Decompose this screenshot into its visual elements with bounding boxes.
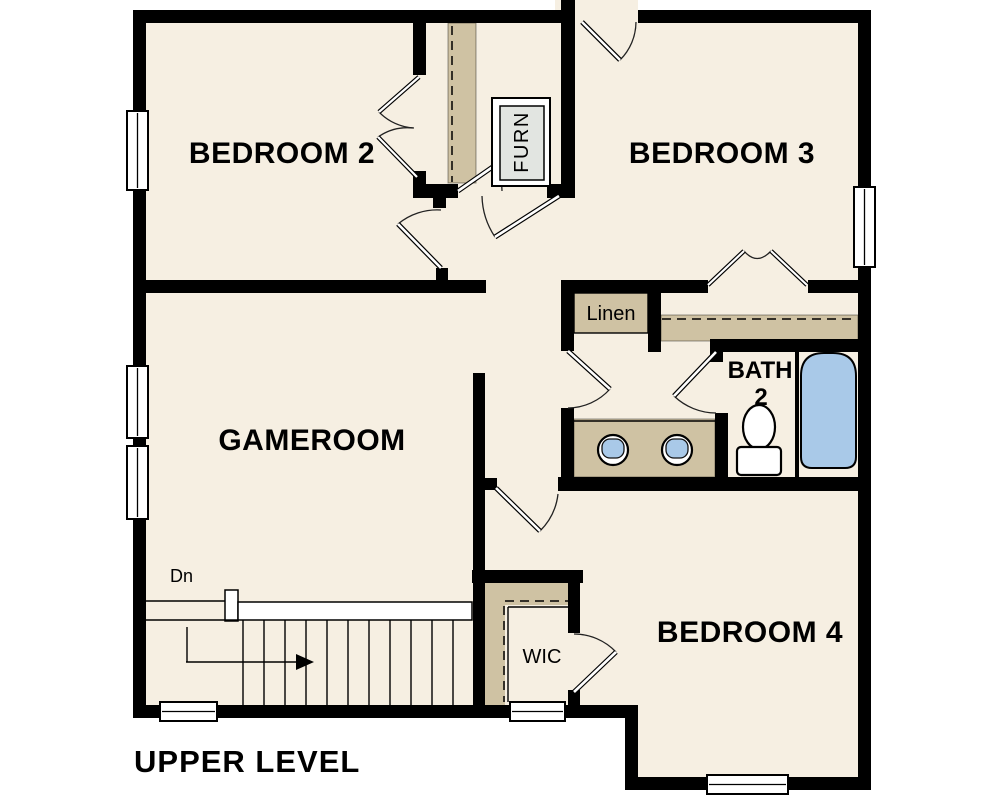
wall-wic-right-upper xyxy=(568,583,580,633)
window-bedroom2-left xyxy=(127,111,148,190)
page-title: UPPER LEVEL xyxy=(134,744,360,779)
wall-bedroom2-gameroom xyxy=(133,280,486,293)
bathtub xyxy=(801,353,856,468)
sink-left xyxy=(598,435,628,465)
stairs-dn-label: Dn xyxy=(170,566,193,586)
vanity-counter xyxy=(574,419,715,477)
bedroom3-label: BEDROOM 3 xyxy=(629,137,815,170)
wall-top-left xyxy=(133,10,561,23)
wic-shelf-left xyxy=(484,583,505,705)
window-gameroom-left-1 xyxy=(127,366,148,438)
gameroom-label: GAMEROOM xyxy=(218,424,405,457)
bedroom4-label: BEDROOM 4 xyxy=(657,616,843,649)
wic-label: WIC xyxy=(523,646,562,668)
window-bedroom3-right xyxy=(854,187,875,267)
bath-label: BATH xyxy=(728,357,793,384)
wall-wic-right-lower xyxy=(568,690,580,706)
wall-bedroom3-south-right xyxy=(808,280,871,293)
wall-bedroom2-door-stub-bottom xyxy=(436,268,448,280)
window-wic-bottom xyxy=(510,702,565,721)
furn-label: FURN xyxy=(511,111,533,173)
wall-bath-top xyxy=(710,339,871,352)
bedroom2-label: BEDROOM 2 xyxy=(189,137,375,170)
wall-top-right xyxy=(638,10,871,23)
wall-toilet-left xyxy=(715,413,728,477)
wall-bedroom3-south-left xyxy=(561,280,708,293)
wall-bathhall-left xyxy=(561,408,574,478)
bath-number-label: 2 xyxy=(754,384,767,411)
wall-tub-divider xyxy=(795,352,799,477)
wall-bath-bottom xyxy=(558,477,871,491)
stair-newel-post xyxy=(225,590,238,621)
stair-railing xyxy=(238,602,472,620)
window-gameroom-left-2 xyxy=(127,446,148,519)
wall-hall-bedroom3 xyxy=(561,0,575,198)
wall-wic-top xyxy=(472,570,583,583)
floor-plan-page: BEDROOM 2 BEDROOM 3 GAMEROOM BEDROOM 4 B… xyxy=(0,0,1000,800)
sink-right xyxy=(662,435,692,465)
wall-right xyxy=(858,10,871,790)
wall-bedroom2-closet-upper xyxy=(413,16,426,75)
floor-plan-drawing: BEDROOM 2 BEDROOM 3 GAMEROOM BEDROOM 4 B… xyxy=(0,0,1000,800)
window-stairs-bottom xyxy=(160,702,217,721)
floor-bedroom4-extension xyxy=(631,712,865,784)
wall-bedroom4-left-lower xyxy=(625,705,638,790)
wall-gameroom-partition xyxy=(473,373,485,705)
window-bedroom4-bottom xyxy=(707,775,788,794)
linen-label: Linen xyxy=(587,303,636,325)
wall-bedroom2-door-stub-top xyxy=(433,190,446,208)
wall-gameroom-door-stub xyxy=(485,478,497,490)
wall-linen-left xyxy=(561,280,574,351)
wall-bath-top-corner xyxy=(648,339,661,352)
